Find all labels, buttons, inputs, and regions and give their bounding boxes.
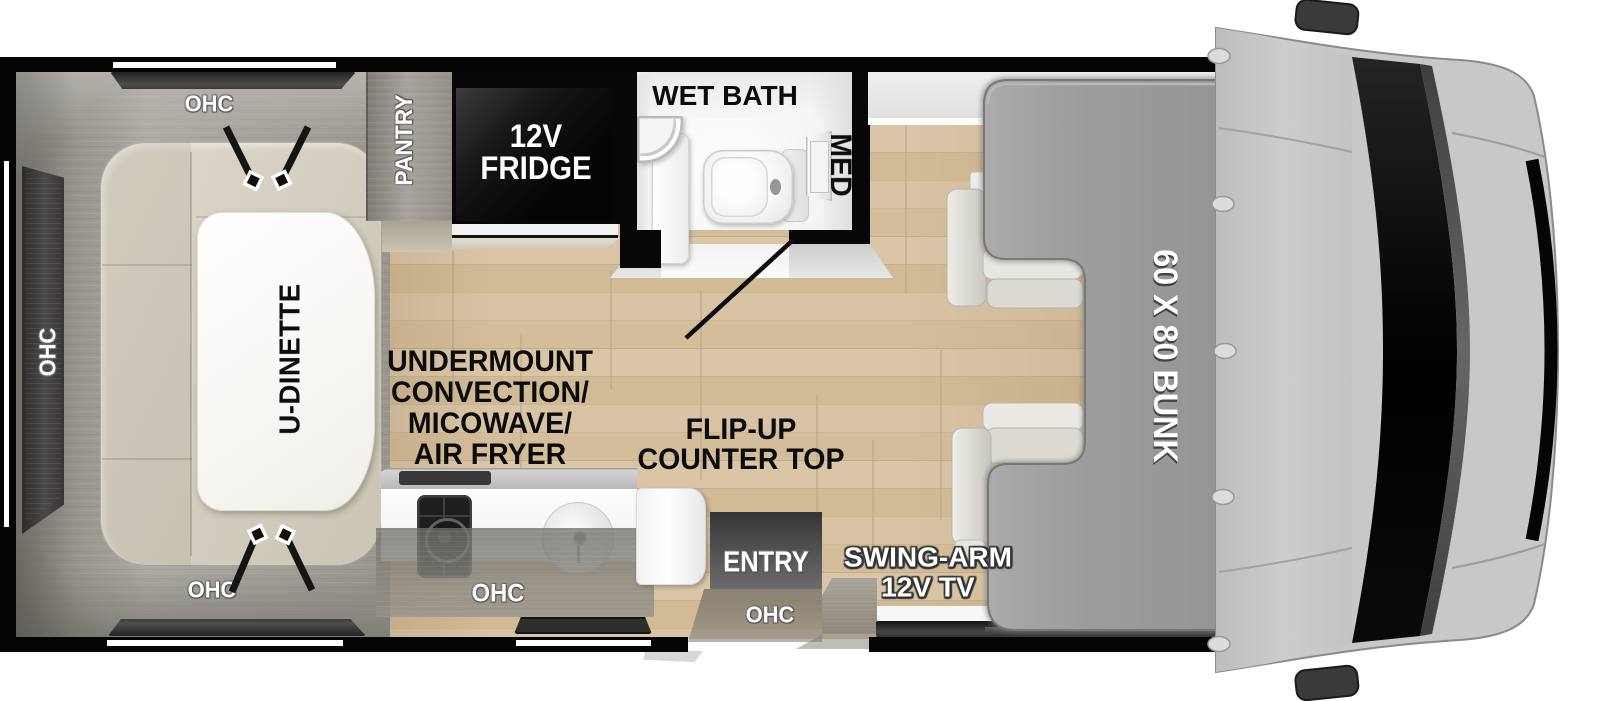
- svg-text:60 X 80 BUNK: 60 X 80 BUNK: [1146, 249, 1184, 463]
